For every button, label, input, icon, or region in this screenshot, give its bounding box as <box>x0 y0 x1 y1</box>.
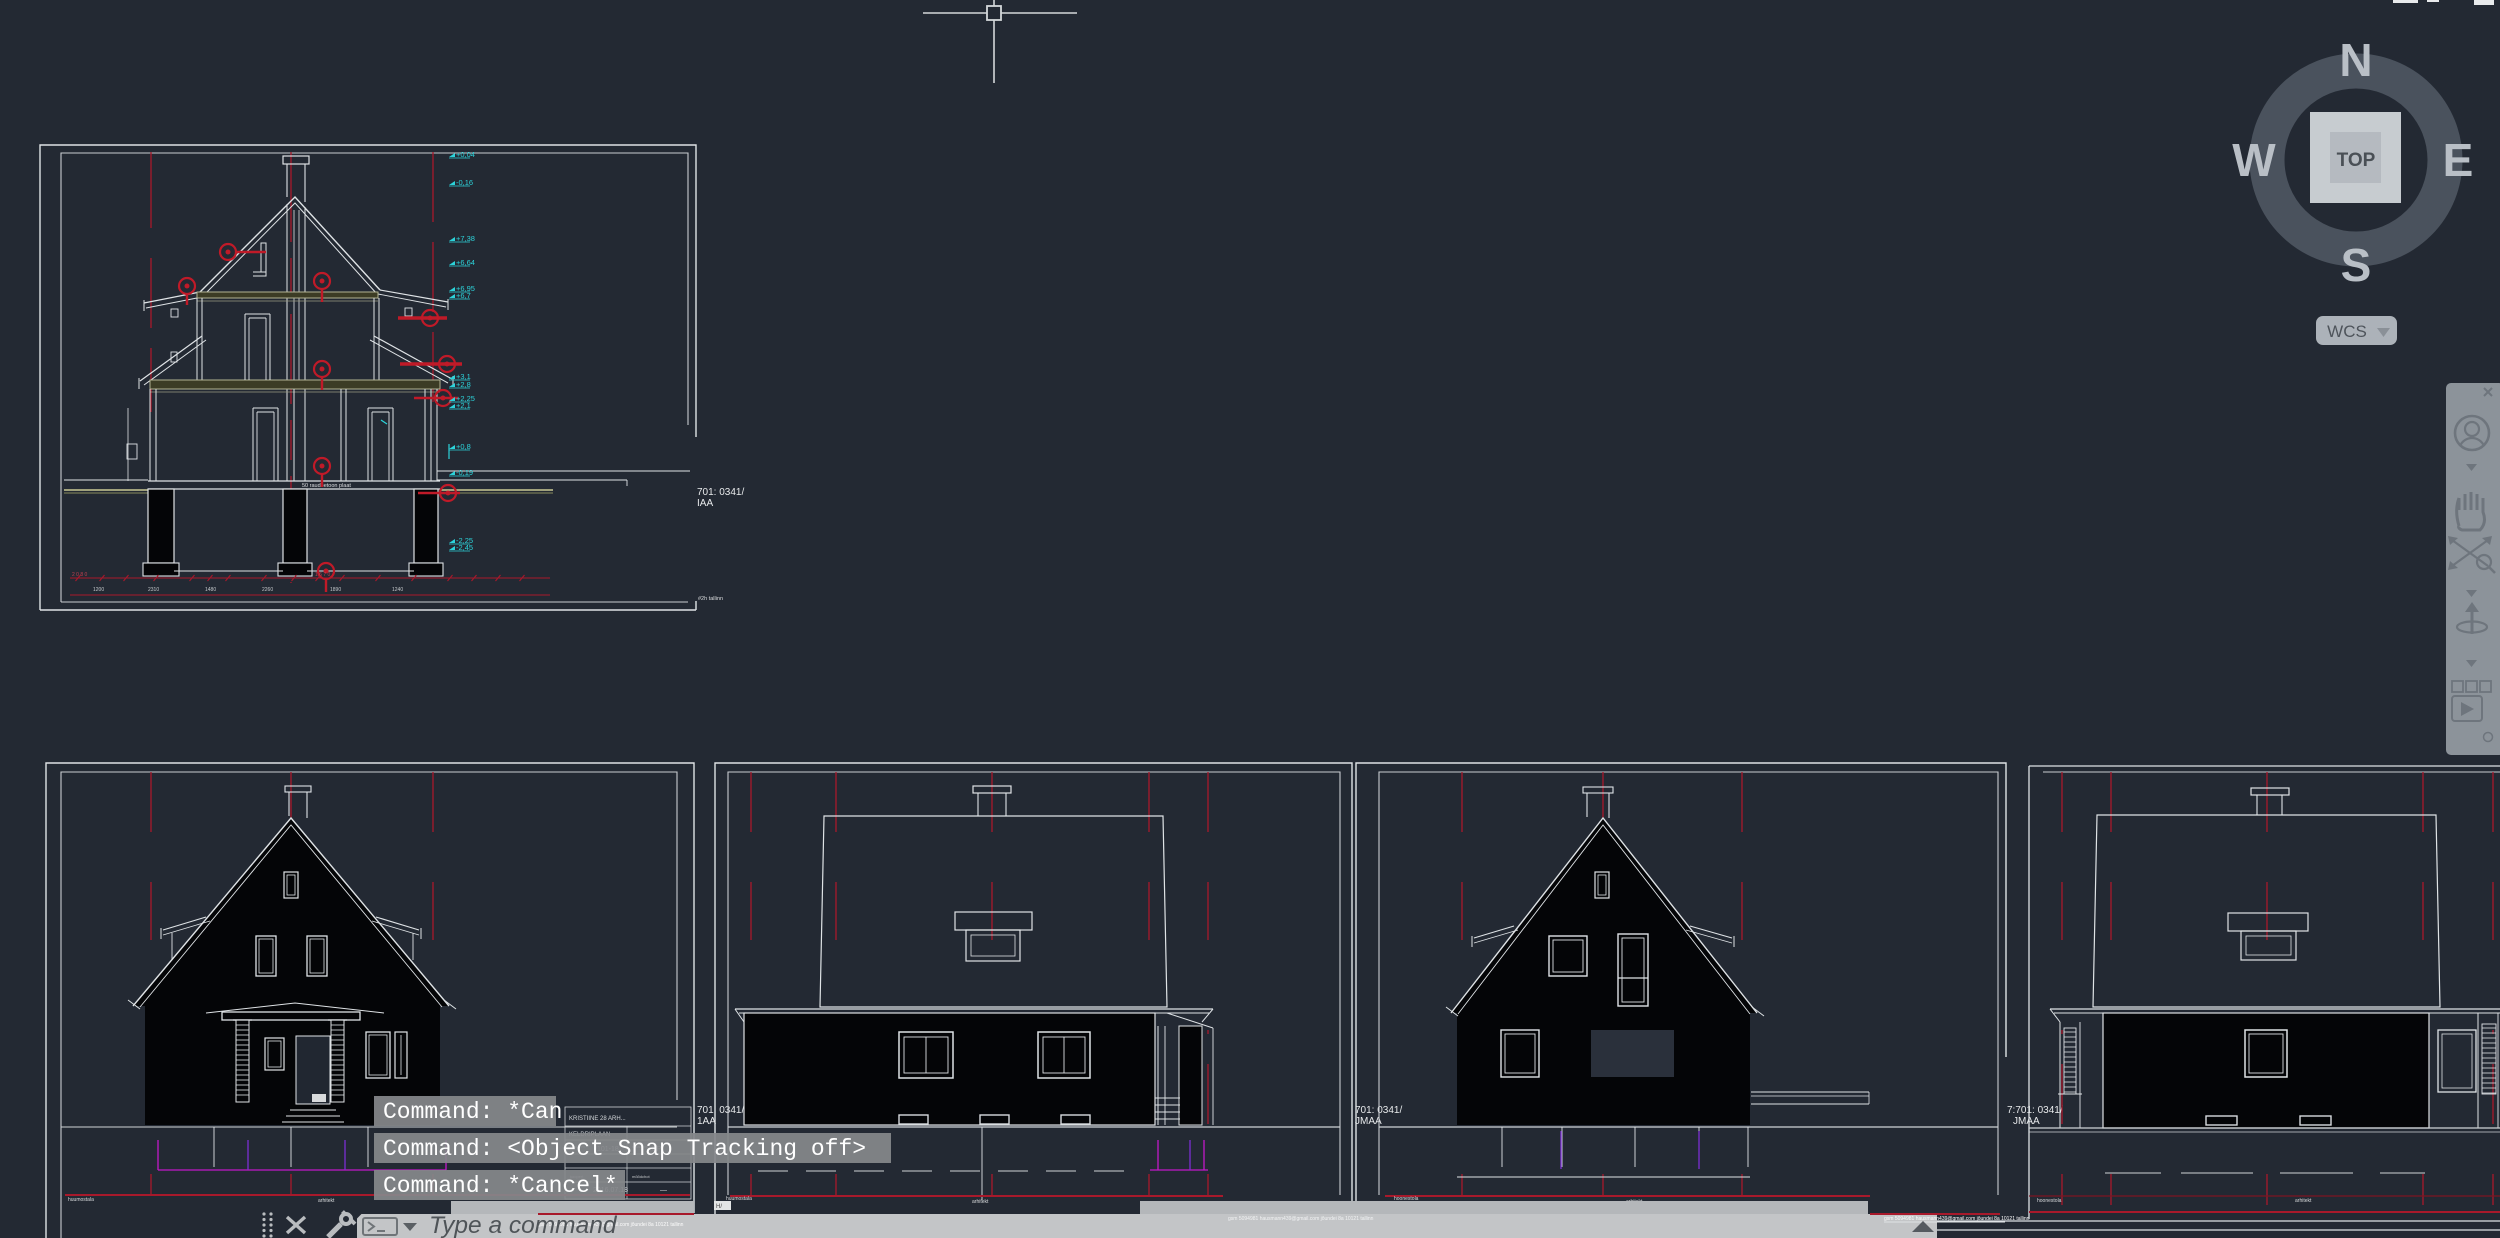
svg-text:gsm 5094981 hausmann439@gmai: gsm 5094981 hausmann439@gmail.com jõunde… <box>1228 1216 1374 1222</box>
svg-text:2310: 2310 <box>148 587 159 593</box>
svg-text:1890: 1890 <box>330 587 341 593</box>
svg-text:TOP: TOP <box>2337 150 2376 171</box>
svg-text:arhitekt: arhitekt <box>972 1199 989 1205</box>
svg-text:S: S <box>2341 239 2372 291</box>
svg-text:JMAA: JMAA <box>2013 1116 2040 1127</box>
svg-text:1AA: 1AA <box>697 1116 716 1127</box>
svg-text:arhitekt: arhitekt <box>2295 1198 2312 1204</box>
svg-text:701: 0341/: 701: 0341/ <box>697 487 744 498</box>
svg-text:1200: 1200 <box>93 587 104 593</box>
svg-text:KRISTIINE 28 ARH...: KRISTIINE 28 ARH... <box>569 1116 626 1122</box>
svg-text:2 0 8 0: 2 0 8 0 <box>72 572 88 578</box>
svg-text:701: 0341/: 701: 0341/ <box>697 1105 744 1116</box>
svg-text:N: N <box>2339 34 2372 86</box>
svg-text:H/: H/ <box>716 1204 722 1210</box>
svg-text:W: W <box>2232 134 2276 186</box>
svg-text:—: — <box>660 1187 667 1194</box>
svg-text:arhitekt: arhitekt <box>318 1198 335 1204</box>
svg-text:JMAA: JMAA <box>1355 1116 1382 1127</box>
svg-text:Command: *Can: Command: *Can <box>383 1099 562 1125</box>
svg-text:E: E <box>2443 134 2474 186</box>
svg-text:Command: <Object Snap Trackin: Command: <Object Snap Tracking off> <box>383 1136 866 1162</box>
svg-text:1240: 1240 <box>392 587 403 593</box>
svg-text:mõõdchot: mõõdchot <box>632 1174 650 1179</box>
svg-text:1 6 7 0: 1 6 7 0 <box>315 572 331 578</box>
svg-text:Command: *Cancel*: Command: *Cancel* <box>383 1173 618 1199</box>
svg-text:2260: 2260 <box>262 587 273 593</box>
svg-text:50 raudbetoon plaat: 50 raudbetoon plaat <box>302 483 351 489</box>
svg-text:Type a command: Type a command <box>429 1212 618 1238</box>
svg-text:WCS: WCS <box>2327 322 2367 341</box>
svg-text:huumostala: huumostala <box>68 1197 94 1203</box>
svg-text:7:701: 0341/: 7:701: 0341/ <box>2007 1105 2063 1116</box>
svg-text:IAA: IAA <box>697 498 713 509</box>
svg-text:1480: 1480 <box>205 587 216 593</box>
svg-text:#2h tallinn: #2h tallinn <box>698 596 723 602</box>
svg-text:hoonestola: hoonestola <box>2037 1198 2062 1204</box>
